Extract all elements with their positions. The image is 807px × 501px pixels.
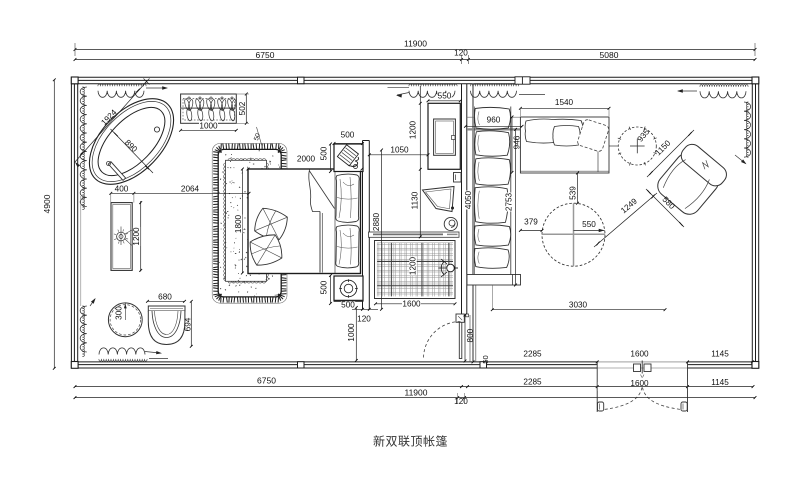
svg-text:3030: 3030 — [569, 300, 588, 309]
svg-text:1000: 1000 — [347, 323, 356, 342]
svg-text:5080: 5080 — [600, 50, 619, 60]
svg-text:2285: 2285 — [523, 349, 542, 358]
svg-text:2880: 2880 — [372, 212, 381, 231]
svg-text:500: 500 — [320, 146, 329, 160]
svg-text:502: 502 — [238, 101, 247, 115]
svg-text:946: 946 — [513, 135, 522, 149]
svg-text:1130: 1130 — [410, 191, 419, 209]
svg-text:11900: 11900 — [404, 39, 427, 49]
svg-text:1600: 1600 — [402, 300, 421, 309]
svg-text:50: 50 — [481, 355, 490, 363]
svg-text:500: 500 — [341, 301, 355, 310]
svg-text:1000: 1000 — [199, 122, 218, 131]
svg-text:新双联顶帐篷: 新双联顶帐篷 — [373, 434, 448, 449]
svg-text:694: 694 — [184, 317, 193, 331]
svg-text:2064: 2064 — [181, 185, 200, 194]
svg-text:11900: 11900 — [404, 388, 427, 398]
svg-text:4900: 4900 — [42, 194, 52, 213]
svg-text:500: 500 — [341, 131, 355, 140]
svg-text:379: 379 — [524, 218, 538, 227]
svg-text:960: 960 — [487, 115, 501, 124]
svg-text:6750: 6750 — [256, 50, 275, 60]
svg-text:1145: 1145 — [711, 378, 729, 387]
svg-text:2000: 2000 — [297, 155, 316, 164]
svg-text:539: 539 — [569, 186, 578, 200]
svg-text:1200: 1200 — [132, 227, 141, 246]
svg-text:2285: 2285 — [523, 378, 542, 387]
svg-text:1600: 1600 — [630, 349, 649, 358]
svg-text:1200: 1200 — [409, 256, 418, 275]
svg-text:4050: 4050 — [464, 190, 473, 209]
svg-text:1200: 1200 — [409, 120, 418, 139]
svg-text:120: 120 — [454, 397, 468, 406]
svg-text:550: 550 — [582, 220, 596, 229]
svg-text:2753: 2753 — [504, 192, 513, 211]
svg-text:120: 120 — [454, 49, 468, 58]
svg-text:800: 800 — [466, 328, 475, 342]
svg-text:550: 550 — [438, 92, 452, 101]
svg-text:680: 680 — [158, 292, 172, 301]
svg-text:1050: 1050 — [390, 146, 409, 155]
svg-text:6750: 6750 — [257, 376, 276, 386]
svg-text:300: 300 — [114, 306, 123, 320]
svg-text:120: 120 — [357, 315, 371, 324]
svg-text:1800: 1800 — [234, 214, 243, 233]
svg-text:1540: 1540 — [555, 98, 574, 107]
svg-text:500: 500 — [320, 280, 329, 294]
svg-text:400: 400 — [115, 185, 129, 194]
svg-text:1145: 1145 — [711, 349, 729, 358]
svg-text:1600: 1600 — [630, 379, 649, 388]
